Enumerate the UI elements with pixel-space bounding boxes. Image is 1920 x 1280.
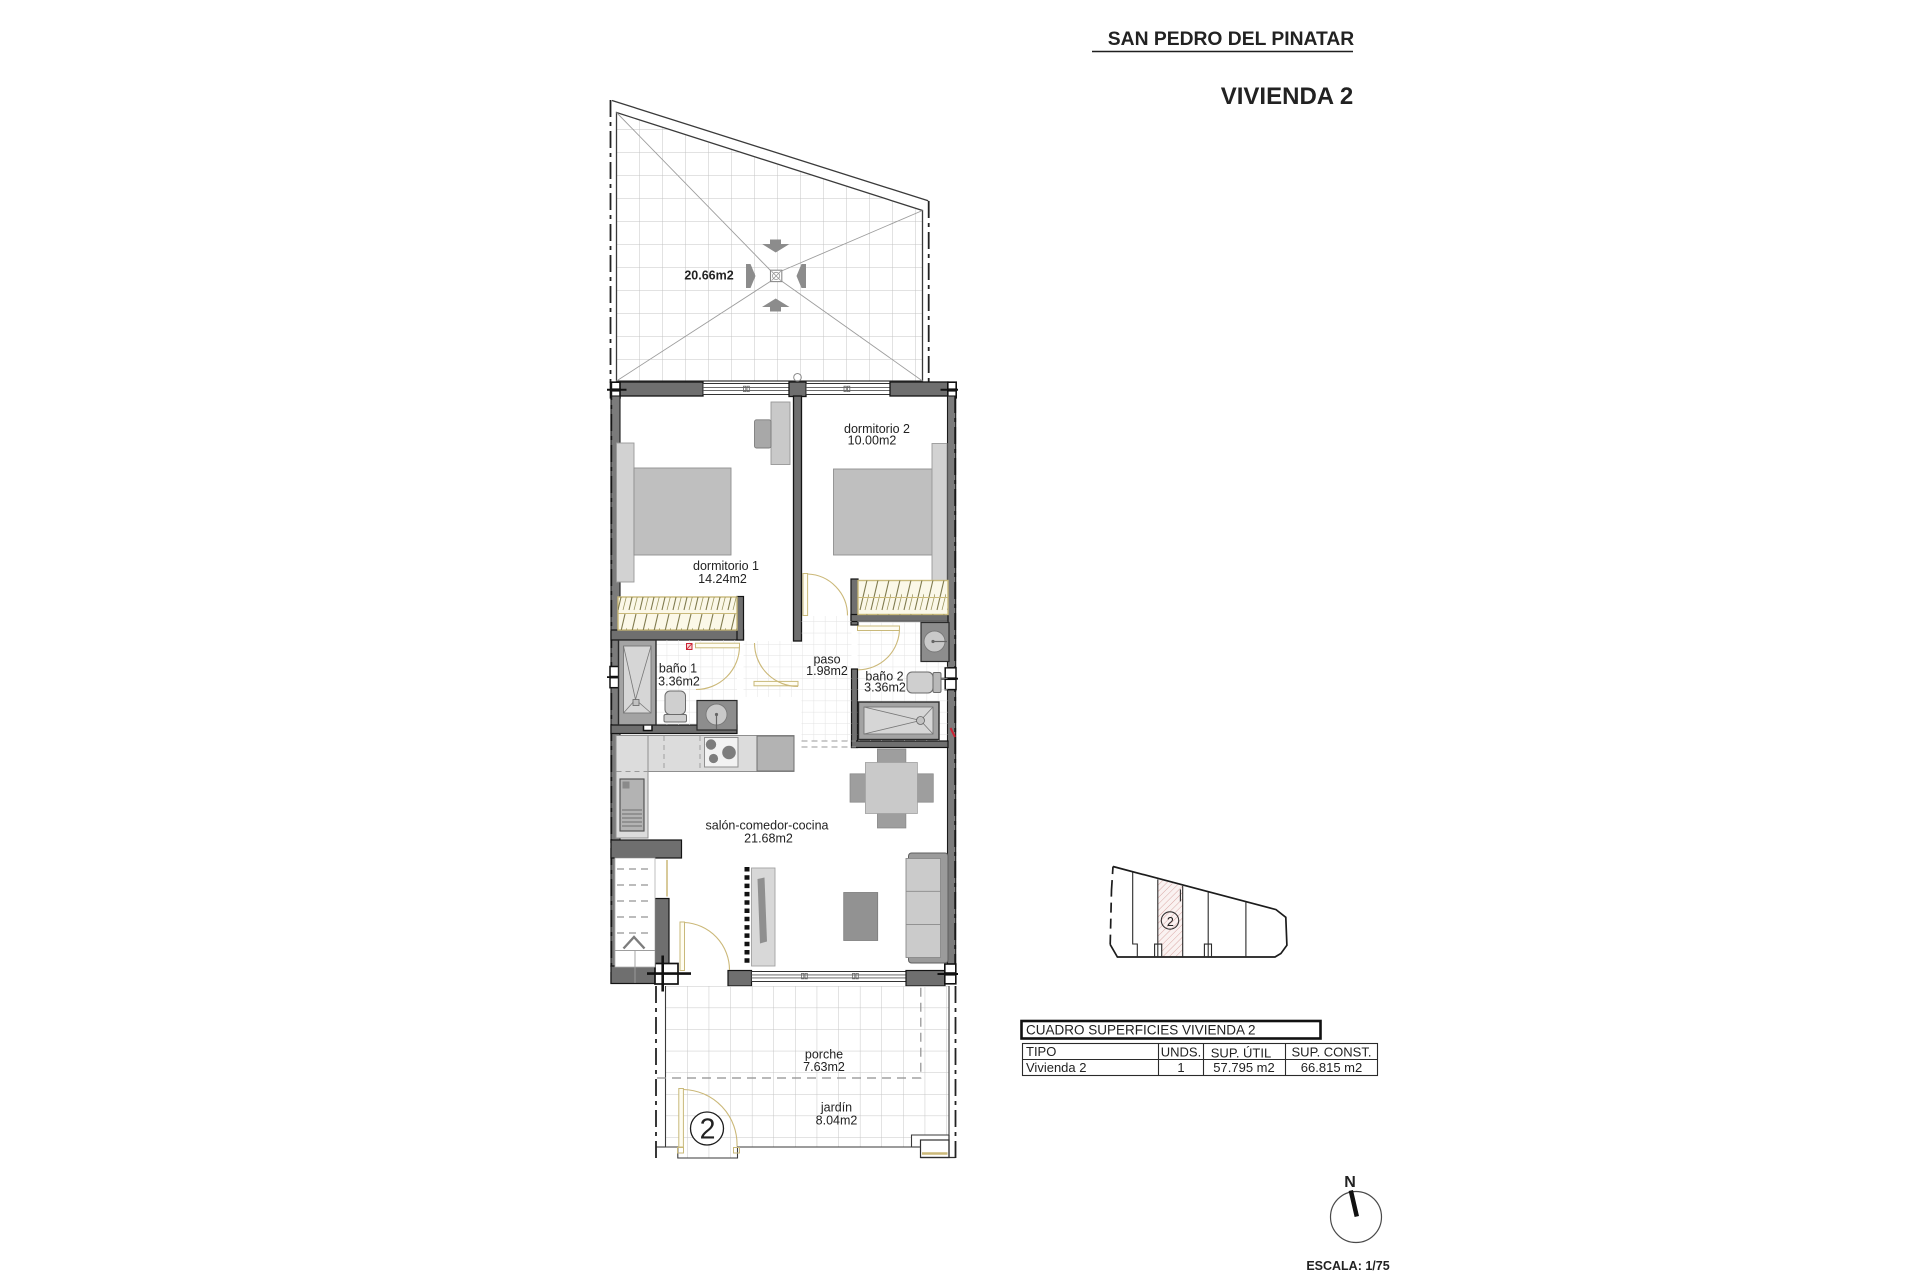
svg-text:dormitorio 1: dormitorio 1 <box>693 559 759 573</box>
svg-text:SUP. CONST.: SUP. CONST. <box>1292 1045 1372 1060</box>
svg-text:2: 2 <box>1167 915 1174 929</box>
svg-text:SAN PEDRO DEL PINATAR: SAN PEDRO DEL PINATAR <box>1108 29 1354 50</box>
svg-text:N: N <box>1344 1174 1356 1191</box>
svg-text:10.00m2: 10.00m2 <box>848 434 897 448</box>
svg-text:1: 1 <box>1177 1060 1184 1075</box>
svg-text:TIPO: TIPO <box>1026 1044 1056 1059</box>
svg-text:jardín: jardín <box>820 1101 852 1115</box>
svg-text:SUP. ÚTIL: SUP. ÚTIL <box>1211 1046 1271 1061</box>
svg-text:1.98m2: 1.98m2 <box>806 664 848 678</box>
svg-text:20.66m2: 20.66m2 <box>684 269 733 283</box>
svg-text:ESCALA: 1/75: ESCALA: 1/75 <box>1306 1259 1389 1273</box>
svg-text:3.36m2: 3.36m2 <box>864 681 906 695</box>
svg-text:2: 2 <box>700 1114 716 1146</box>
svg-text:CUADRO SUPERFICIES VIVIENDA 2: CUADRO SUPERFICIES VIVIENDA 2 <box>1026 1023 1256 1038</box>
svg-text:57.795 m2: 57.795 m2 <box>1213 1060 1274 1075</box>
svg-text:UNDS.: UNDS. <box>1161 1045 1201 1060</box>
svg-text:Vivienda 2: Vivienda 2 <box>1026 1060 1086 1075</box>
svg-text:salón-comedor-cocina: salón-comedor-cocina <box>706 819 829 833</box>
svg-text:VIVIENDA 2: VIVIENDA 2 <box>1221 83 1353 110</box>
svg-text:7.63m2: 7.63m2 <box>803 1060 845 1074</box>
svg-text:3.36m2: 3.36m2 <box>658 675 700 689</box>
svg-text:66.815 m2: 66.815 m2 <box>1301 1060 1362 1075</box>
svg-text:21.68m2: 21.68m2 <box>744 832 793 846</box>
svg-text:baño 1: baño 1 <box>659 662 697 676</box>
svg-text:14.24m2: 14.24m2 <box>698 572 747 586</box>
svg-text:8.04m2: 8.04m2 <box>816 1114 858 1128</box>
